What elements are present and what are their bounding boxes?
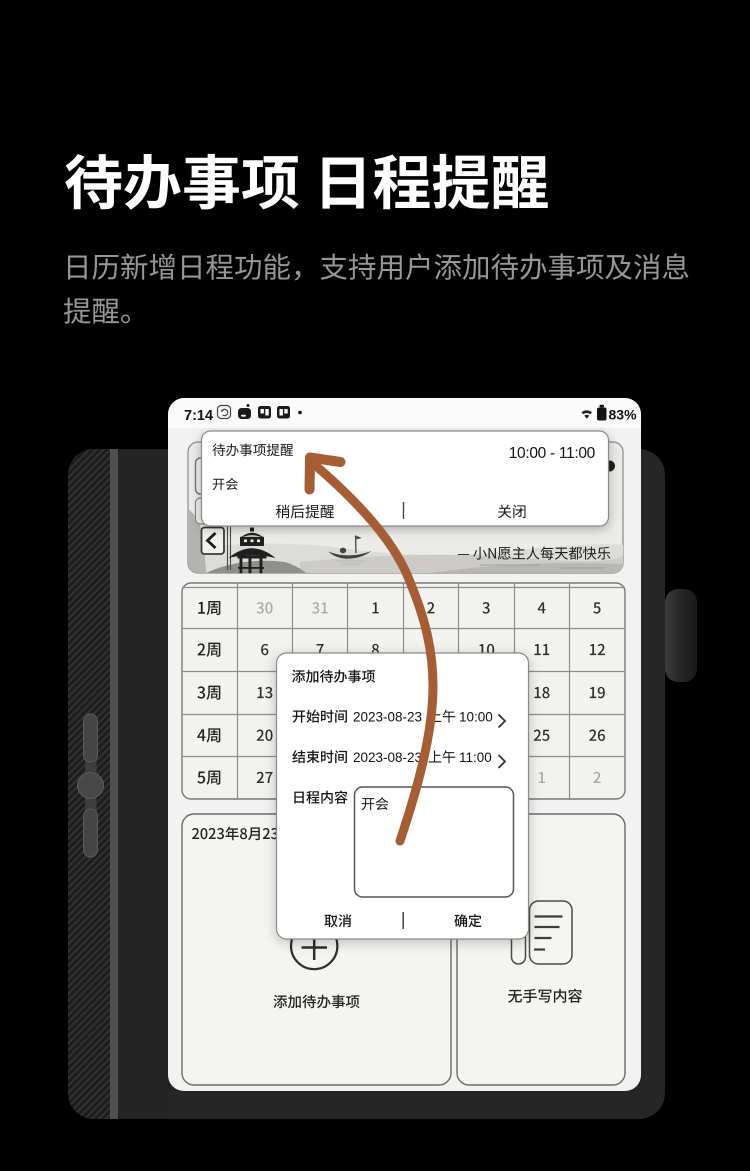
svg-text:2023-08-23: 2023-08-23 [353, 710, 422, 725]
svg-text:10:00 - 11:00: 10:00 - 11:00 [509, 445, 596, 462]
svg-text:10:00: 10:00 [459, 710, 493, 725]
svg-text:83%: 83% [609, 407, 638, 423]
svg-text:2023-08-23: 2023-08-23 [353, 750, 422, 765]
svg-text:11:00: 11:00 [459, 750, 492, 765]
svg-text:7:14: 7:14 [184, 408, 213, 424]
